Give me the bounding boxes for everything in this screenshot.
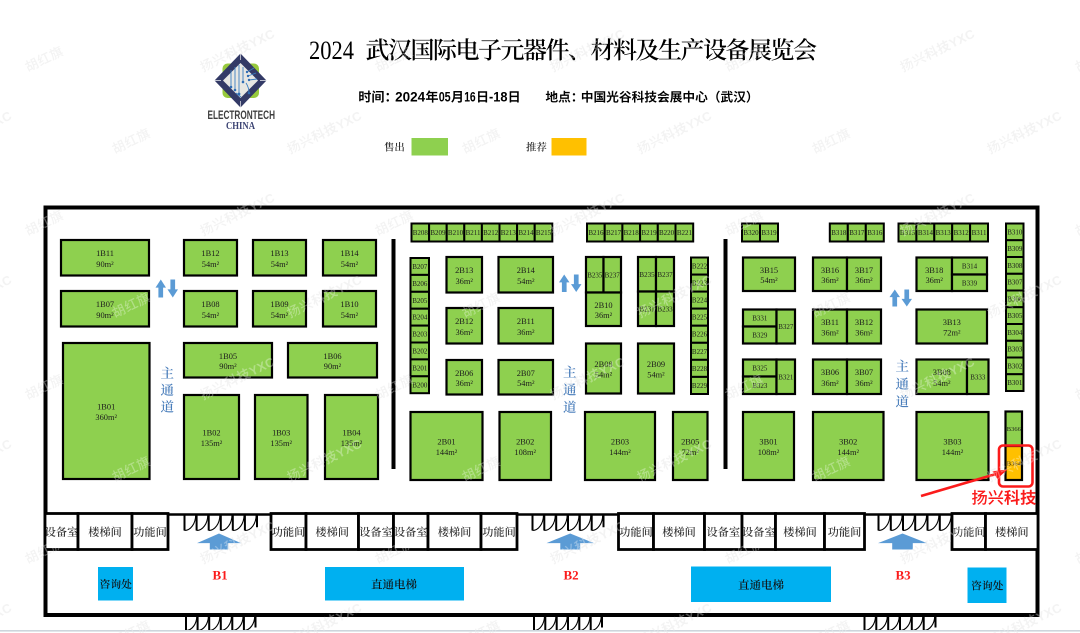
svg-text:B2: B2 — [564, 568, 579, 583]
svg-text:3B01: 3B01 — [759, 438, 777, 447]
svg-text:1B13: 1B13 — [270, 249, 288, 258]
svg-text:360m²: 360m² — [95, 413, 117, 422]
svg-text:1B10: 1B10 — [340, 300, 358, 309]
svg-text:B310: B310 — [1007, 228, 1023, 236]
svg-text:B214: B214 — [518, 229, 534, 237]
svg-text:1B08: 1B08 — [201, 300, 219, 309]
svg-text:54m²: 54m² — [517, 379, 535, 388]
svg-text:B303: B303 — [1007, 346, 1023, 354]
svg-text:1B06: 1B06 — [323, 352, 341, 361]
svg-text:B309: B309 — [1007, 245, 1023, 253]
svg-text:36m²: 36m² — [517, 328, 535, 337]
svg-text:36m²: 36m² — [821, 329, 839, 338]
svg-text:54m²: 54m² — [271, 260, 289, 269]
svg-text:B304: B304 — [1007, 329, 1023, 337]
svg-text:1B11: 1B11 — [96, 249, 114, 258]
svg-text:B339: B339 — [962, 279, 978, 287]
svg-text:2B12: 2B12 — [455, 317, 473, 326]
svg-text:54m²: 54m² — [202, 260, 220, 269]
svg-text:1B07: 1B07 — [96, 300, 114, 309]
svg-text:B221: B221 — [677, 229, 693, 237]
svg-text:3B17: 3B17 — [855, 266, 873, 275]
svg-text:B200: B200 — [412, 381, 428, 389]
svg-text:3B16: 3B16 — [821, 266, 839, 275]
svg-text:-18: -18 — [489, 90, 508, 105]
svg-text:1B01: 1B01 — [97, 403, 115, 412]
svg-text:B329: B329 — [752, 332, 768, 340]
svg-text:B204: B204 — [412, 314, 428, 322]
svg-text:36m²: 36m² — [855, 276, 873, 285]
svg-text:36m²: 36m² — [925, 276, 943, 285]
svg-text:54m²: 54m² — [647, 371, 665, 380]
svg-text:36m²: 36m² — [855, 379, 873, 388]
svg-text:B307: B307 — [1007, 279, 1023, 287]
svg-text:B316: B316 — [867, 229, 883, 237]
svg-text:3B03: 3B03 — [943, 438, 961, 447]
svg-text:B211: B211 — [466, 229, 481, 237]
svg-text:B220: B220 — [659, 229, 675, 237]
svg-text:144m²: 144m² — [609, 448, 631, 457]
svg-text:B201: B201 — [412, 364, 428, 372]
svg-text:2B11: 2B11 — [517, 317, 535, 326]
svg-text:B301: B301 — [1007, 379, 1023, 387]
svg-text:3B13: 3B13 — [943, 318, 961, 327]
svg-text:3B02: 3B02 — [839, 438, 857, 447]
svg-text:B318: B318 — [831, 229, 847, 237]
svg-text:36m²: 36m² — [455, 328, 473, 337]
svg-text:B325: B325 — [752, 365, 768, 373]
svg-text:3B18: 3B18 — [925, 266, 943, 275]
svg-text:144m²: 144m² — [436, 448, 458, 457]
svg-text:1B12: 1B12 — [201, 249, 219, 258]
svg-text:2B03: 2B03 — [611, 438, 629, 447]
svg-text:B327: B327 — [778, 323, 794, 331]
svg-text:2B02: 2B02 — [516, 438, 534, 447]
svg-text:3B07: 3B07 — [855, 368, 873, 377]
svg-text:1B04: 1B04 — [342, 429, 361, 438]
svg-text:B321: B321 — [778, 373, 794, 381]
svg-text:36m²: 36m² — [855, 329, 873, 338]
svg-text:2B13: 2B13 — [455, 266, 473, 275]
svg-text:B216: B216 — [588, 229, 604, 237]
svg-text:3B06: 3B06 — [821, 368, 839, 377]
svg-text:B312: B312 — [954, 229, 970, 237]
svg-text:3B15: 3B15 — [760, 266, 778, 275]
svg-text:B235: B235 — [587, 271, 603, 279]
svg-text:B320: B320 — [743, 229, 759, 237]
svg-text:135m²: 135m² — [270, 439, 292, 448]
svg-text:1B14: 1B14 — [340, 249, 359, 258]
svg-text:3B11: 3B11 — [821, 318, 839, 327]
svg-text:36m²: 36m² — [455, 379, 473, 388]
svg-text:B210: B210 — [448, 229, 464, 237]
svg-text:72m²: 72m² — [943, 329, 961, 338]
svg-text:54m²: 54m² — [341, 260, 359, 269]
svg-text:54m²: 54m² — [760, 276, 778, 285]
svg-text:90m²: 90m² — [96, 311, 114, 320]
svg-text:1B09: 1B09 — [270, 300, 288, 309]
svg-text:B202: B202 — [412, 348, 428, 356]
svg-text:B235: B235 — [639, 271, 655, 279]
svg-text:1B03: 1B03 — [272, 429, 290, 438]
svg-text:2B07: 2B07 — [517, 369, 535, 378]
svg-text:54m²: 54m² — [517, 277, 535, 286]
svg-text:B217: B217 — [606, 229, 622, 237]
svg-text:1B05: 1B05 — [219, 352, 237, 361]
svg-text:144m²: 144m² — [837, 448, 859, 457]
svg-text:B1: B1 — [213, 568, 228, 583]
svg-text:36m²: 36m² — [455, 277, 473, 286]
svg-text:B224: B224 — [692, 297, 708, 305]
svg-text:B237: B237 — [605, 271, 621, 279]
svg-text:B207: B207 — [412, 263, 428, 271]
svg-text:90m²: 90m² — [96, 260, 114, 269]
svg-text:B215: B215 — [536, 229, 552, 237]
svg-text:B205: B205 — [412, 297, 428, 305]
svg-text:B222: B222 — [692, 263, 708, 271]
svg-text:B203: B203 — [412, 331, 428, 339]
svg-text:B317: B317 — [849, 229, 865, 237]
svg-text:B209: B209 — [430, 229, 446, 237]
svg-text:54m²: 54m² — [341, 311, 359, 320]
svg-text:2B14: 2B14 — [517, 266, 536, 275]
svg-text:B227: B227 — [692, 348, 708, 356]
svg-text:CHINA: CHINA — [226, 121, 256, 132]
svg-text:B3: B3 — [896, 568, 912, 583]
svg-text:2024: 2024 — [395, 90, 426, 105]
svg-text:3B12: 3B12 — [855, 318, 873, 327]
svg-text:05: 05 — [439, 90, 451, 105]
svg-text:B314: B314 — [918, 229, 934, 237]
svg-text:B212: B212 — [483, 229, 499, 237]
svg-text:B225: B225 — [692, 314, 708, 322]
svg-text:B302: B302 — [1007, 362, 1023, 370]
svg-text:36m²: 36m² — [821, 379, 839, 388]
svg-text:2B06: 2B06 — [455, 369, 473, 378]
svg-text:36m²: 36m² — [595, 311, 613, 320]
svg-text:B226: B226 — [692, 331, 708, 339]
svg-text:B218: B218 — [624, 229, 640, 237]
svg-text:B311: B311 — [972, 229, 987, 237]
svg-text:B219: B219 — [641, 229, 657, 237]
svg-text:90m²: 90m² — [219, 362, 237, 371]
svg-text:54m²: 54m² — [271, 311, 289, 320]
svg-text:B308: B308 — [1007, 262, 1023, 270]
svg-text:90m²: 90m² — [324, 362, 342, 371]
svg-text:B206: B206 — [412, 280, 428, 288]
svg-text:B213: B213 — [501, 229, 517, 237]
svg-text:1B02: 1B02 — [202, 429, 220, 438]
svg-text:B331: B331 — [752, 315, 768, 323]
svg-text:108m²: 108m² — [758, 448, 780, 457]
svg-text:B313: B313 — [936, 229, 952, 237]
svg-text:B305: B305 — [1007, 312, 1023, 320]
svg-text:36m²: 36m² — [821, 276, 839, 285]
svg-text:B208: B208 — [413, 229, 429, 237]
svg-text:54m²: 54m² — [202, 311, 220, 320]
svg-text:2B09: 2B09 — [647, 360, 665, 369]
svg-text:2024: 2024 — [309, 35, 354, 65]
svg-text:2B10: 2B10 — [594, 301, 612, 310]
svg-text:B229: B229 — [692, 382, 708, 390]
svg-text:B366: B366 — [1007, 426, 1022, 433]
svg-text:144m²: 144m² — [942, 448, 964, 457]
svg-text:B315: B315 — [900, 229, 916, 237]
svg-text:B319: B319 — [761, 229, 777, 237]
svg-text:16: 16 — [464, 90, 476, 105]
svg-text:108m²: 108m² — [514, 448, 536, 457]
svg-text:B314: B314 — [962, 263, 978, 271]
svg-text:135m²: 135m² — [201, 439, 223, 448]
svg-text:B333: B333 — [970, 373, 986, 381]
svg-text:2B01: 2B01 — [437, 438, 455, 447]
svg-text:B228: B228 — [692, 365, 708, 373]
svg-text:B237: B237 — [657, 271, 673, 279]
